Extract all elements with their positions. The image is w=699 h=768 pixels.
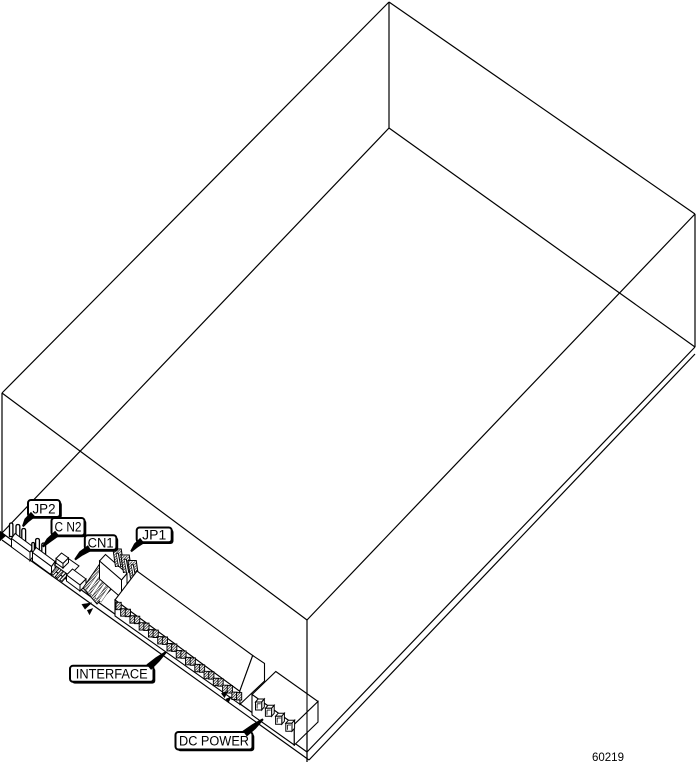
svg-text:CN1: CN1 bbox=[88, 535, 114, 550]
svg-text:DC POWER: DC POWER bbox=[179, 734, 249, 749]
svg-text:C N2: C N2 bbox=[55, 520, 82, 535]
svg-text:JP2: JP2 bbox=[33, 501, 56, 516]
svg-text:60219: 60219 bbox=[592, 752, 624, 764]
svg-text:JP1: JP1 bbox=[142, 528, 166, 543]
svg-text:INTERFACE: INTERFACE bbox=[76, 667, 148, 682]
